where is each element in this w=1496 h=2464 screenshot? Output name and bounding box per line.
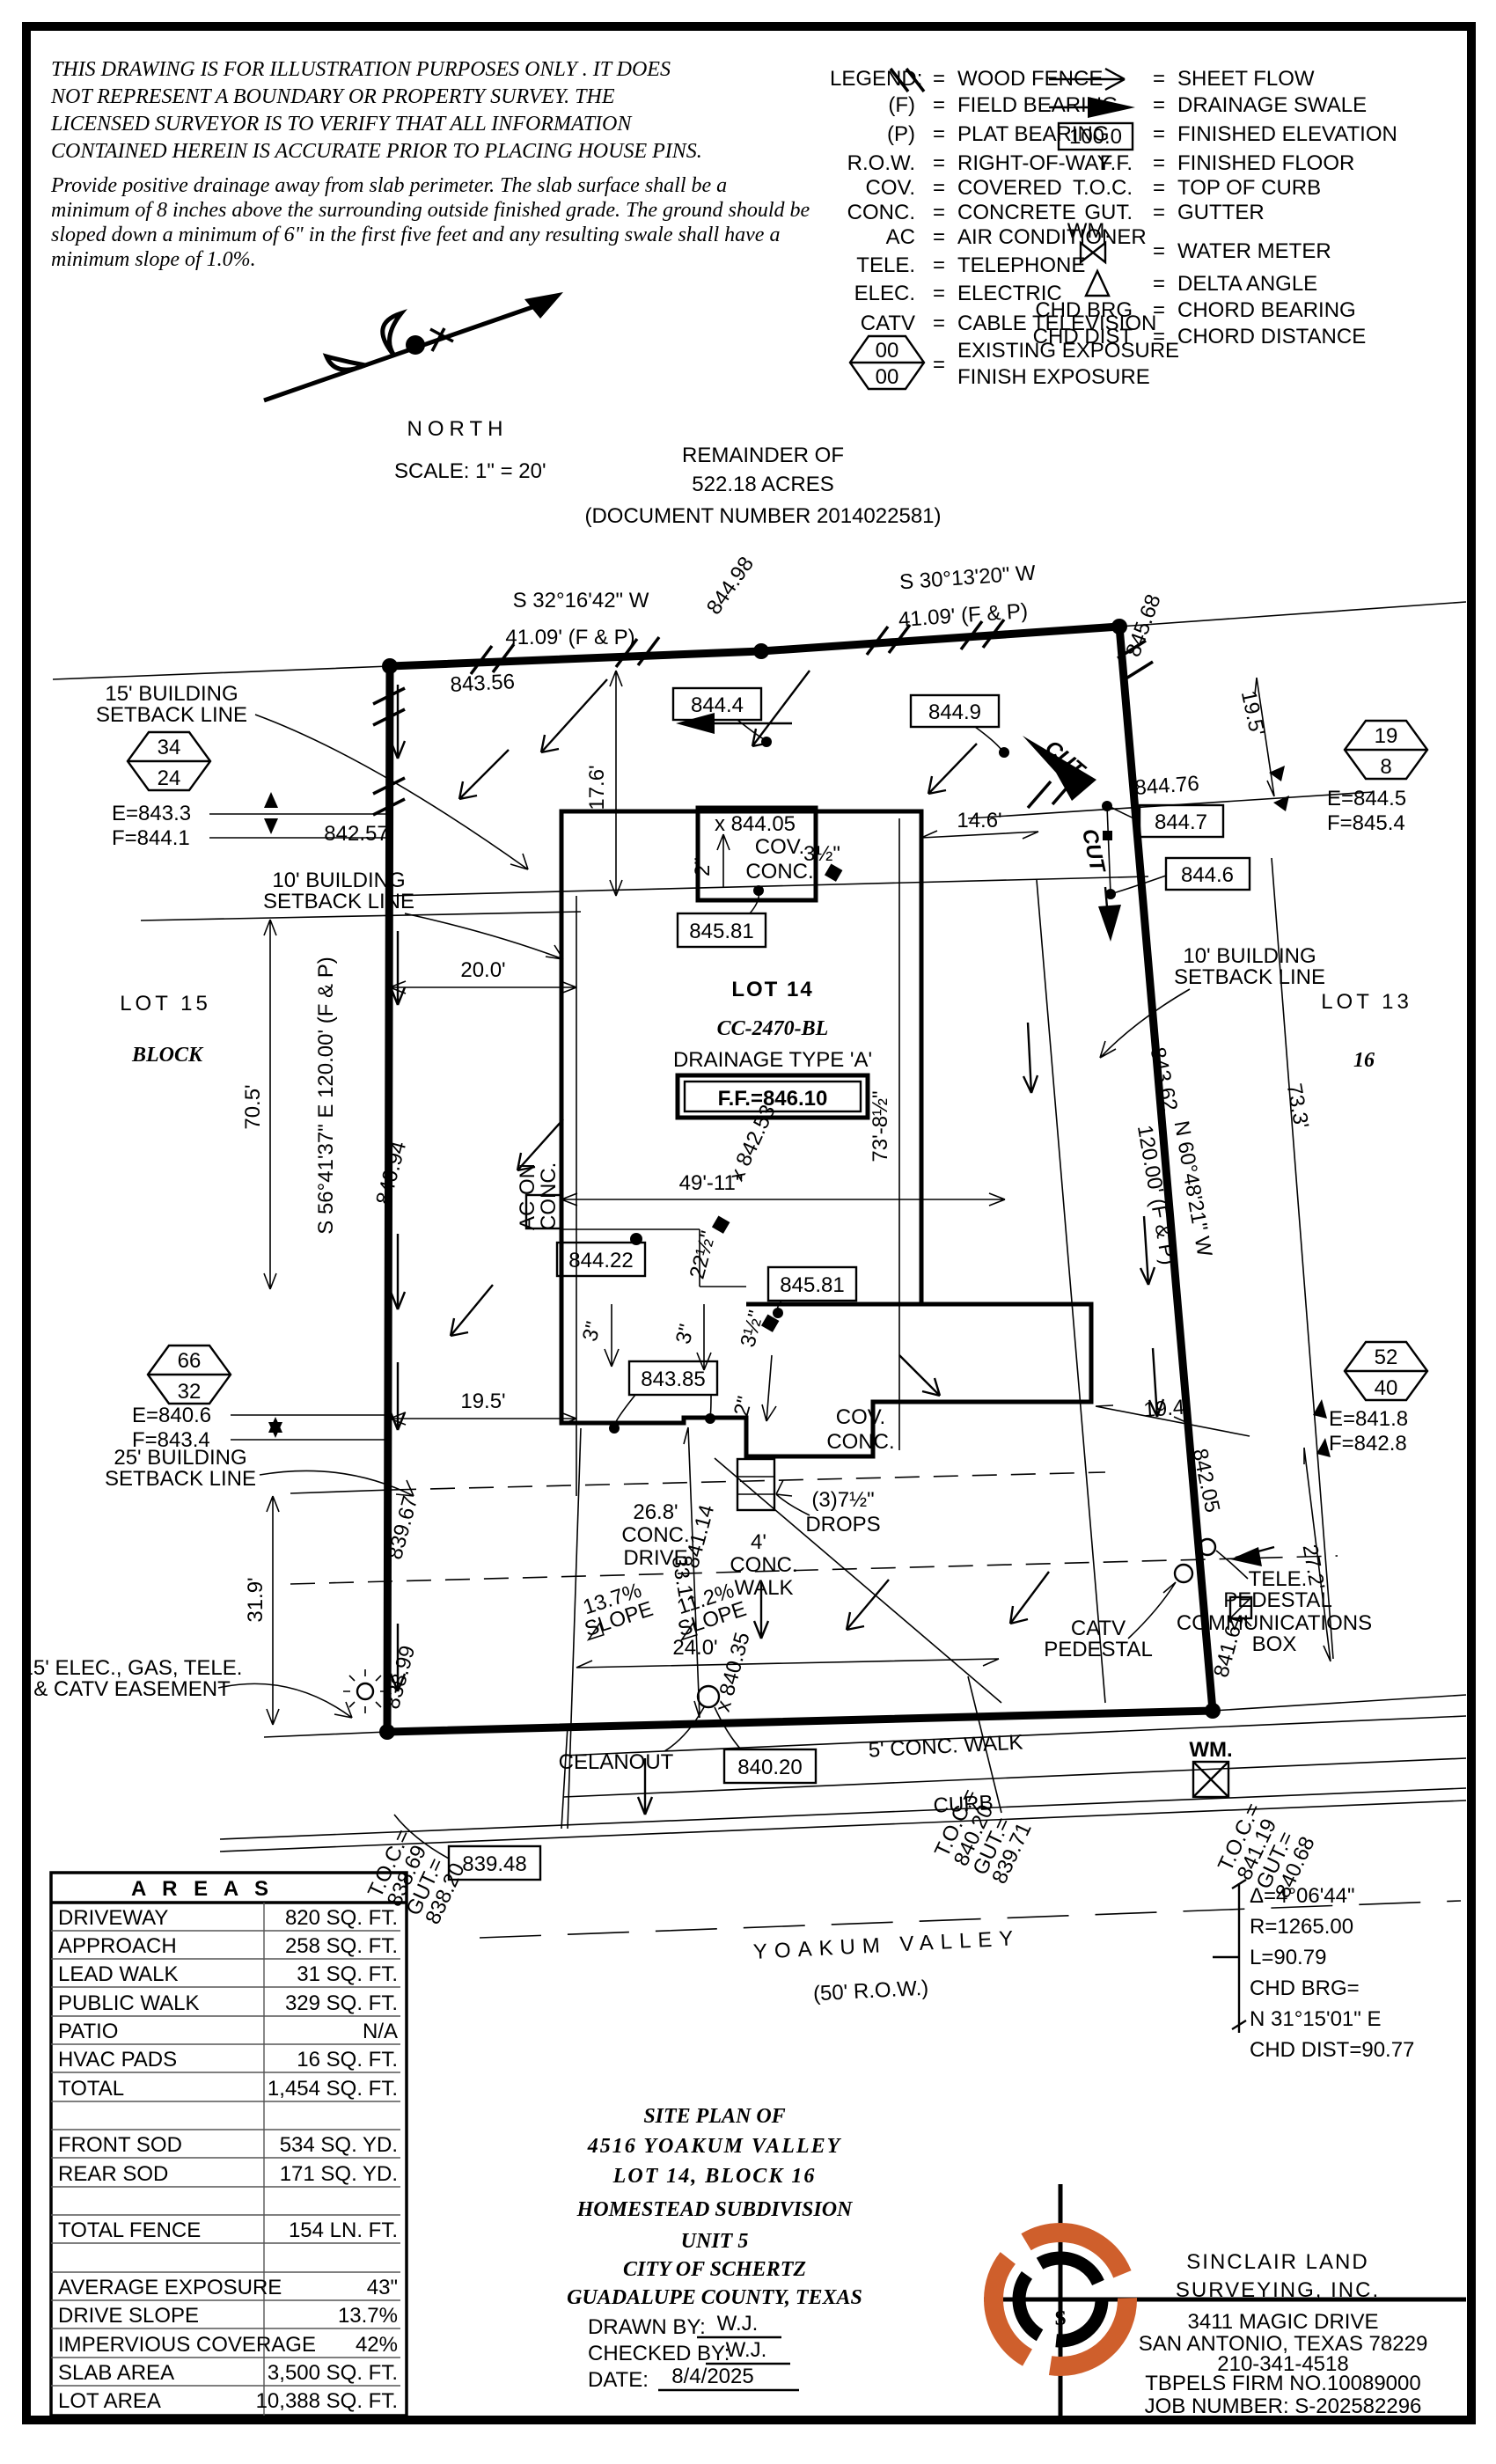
- dim-3in: 3": [671, 1322, 700, 1346]
- table-row-label: DRIVEWAY: [58, 1906, 168, 1930]
- bearing-top-left: S 32°16'42" W: [513, 589, 649, 612]
- checked-by-value: W.J.: [726, 2338, 767, 2362]
- spot-elev-844-4: 844.4: [673, 688, 772, 747]
- svg-text:4': 4': [751, 1530, 766, 1554]
- spot-elev-844-7: 844.7: [1102, 801, 1223, 837]
- legend-sym: ELEC.: [854, 282, 915, 305]
- svg-text:843.85: 843.85: [641, 1368, 705, 1391]
- legend-sym: (P): [887, 122, 915, 146]
- table-row-value: 258 SQ. FT.: [285, 1934, 398, 1958]
- drive-26-8: 26.8': [633, 1500, 678, 1524]
- dim-19-5-left-line: [390, 1412, 576, 1425]
- table-row-label: HVAC PADS: [58, 2048, 177, 2072]
- drainage-note-line: minimum of 8 inches above the surroundin…: [51, 199, 810, 222]
- dim-3in: 3": [578, 1319, 606, 1344]
- drainage-note-line: sloped down a minimum of 6" in the first…: [51, 224, 780, 246]
- table-row-value: 534 SQ. YD.: [280, 2133, 398, 2157]
- elev-843-56: 843.56: [450, 670, 516, 697]
- svg-text:AC ON: AC ON: [516, 1163, 539, 1230]
- elev-840-94: 840.94: [371, 1139, 411, 1207]
- lot14-label: LOT 14: [731, 978, 813, 1001]
- county: GUADALUPE COUNTY, TEXAS: [567, 2286, 862, 2309]
- table-row-value: 43": [367, 2276, 398, 2299]
- legend-sym: (F): [888, 93, 915, 117]
- table-row-label: TOTAL FENCE: [58, 2218, 201, 2242]
- svg-text:10' BUILDING: 10' BUILDING: [272, 869, 405, 892]
- legend-label: TELEPHONE: [957, 253, 1085, 277]
- document-number: (DOCUMENT NUMBER 2014022581): [584, 504, 941, 528]
- setback-line-10ft-right: [1037, 880, 1105, 1703]
- hatch-mark: [825, 863, 842, 881]
- dim-24: 24.0': [672, 1636, 717, 1660]
- disclaimer-line: THIS DRAWING IS FOR ILLUSTRATION PURPOSE…: [51, 58, 671, 81]
- cc-number: CC-2470-BL: [717, 1017, 829, 1040]
- lot15-label: LOT 15: [120, 992, 211, 1016]
- svg-text:844.22: 844.22: [568, 1249, 633, 1272]
- table-row-label: TOTAL: [58, 2077, 124, 2101]
- equals: =: [933, 201, 945, 224]
- disclaimer-line: NOT REPRESENT A BOUNDARY OR PROPERTY SUR…: [50, 85, 615, 108]
- legend-sym: AC: [886, 225, 915, 249]
- equals: =: [933, 122, 945, 146]
- legend-label: CHORD DISTANCE: [1177, 325, 1366, 348]
- svg-text:845.81: 845.81: [780, 1273, 844, 1297]
- site-plan-drawing: THIS DRAWING IS FOR ILLUSTRATION PURPOSE…: [0, 0, 1496, 2464]
- table-row-label: APPROACH: [58, 1934, 177, 1958]
- company-firm: TBPELS FIRM NO.10089000: [1145, 2372, 1420, 2395]
- legend-label: GUTTER: [1177, 201, 1265, 224]
- dim-19-4: 19.4': [1143, 1395, 1190, 1422]
- table-row-label: DRIVE SLOPE: [58, 2304, 199, 2328]
- svg-text:PEDESTAL: PEDESTAL: [1044, 1638, 1153, 1661]
- table-row-label: LOT AREA: [58, 2389, 161, 2413]
- walk-5ft-label: 5' CONC. WALK: [868, 1730, 1023, 1762]
- dim-2in: 2": [730, 1394, 758, 1419]
- finished-floor-box: F.F.=846.10: [678, 1075, 868, 1118]
- arrow-3in-a: [605, 1304, 619, 1367]
- svg-text:E=843.3: E=843.3: [112, 802, 191, 825]
- ac-label: AC ON CONC.: [516, 1162, 561, 1230]
- elev-844-98: 844.98: [702, 553, 759, 620]
- legend-sym: T.O.C.: [1073, 176, 1133, 200]
- logo-s: S: [1054, 2307, 1066, 2330]
- legend-label: FINISH EXPOSURE: [957, 365, 1150, 389]
- equals: =: [933, 353, 945, 377]
- table-row-value: 171 SQ. YD.: [280, 2162, 398, 2186]
- legend: LEGEND: (F) (P) R.O.W. COV. CONC. AC TEL…: [830, 67, 1397, 389]
- table-row-value: 10,388 SQ. FT.: [256, 2389, 398, 2413]
- company-name: SURVEYING, INC.: [1176, 2278, 1380, 2302]
- curve-chd-brg-value: N 31°15'01" E: [1250, 2007, 1381, 2031]
- legend-sym: CHD BRG: [1035, 298, 1133, 322]
- areas-table: A R E A S DRIVEWAY820 SQ. FT. APPROACH25…: [51, 1873, 407, 2416]
- title-block: SITE PLAN OF 4516 YOAKUM VALLEY LOT 14, …: [567, 2105, 862, 2392]
- elev-842-57: 842.57: [324, 822, 388, 846]
- svg-text:SETBACK LINE: SETBACK LINE: [96, 703, 247, 727]
- svg-text:32: 32: [178, 1380, 202, 1404]
- legend-sym: COV.: [866, 176, 915, 200]
- dim-2in: 2": [691, 857, 715, 876]
- legend-label: FINISHED ELEVATION: [1177, 122, 1397, 146]
- legend-label: DELTA ANGLE: [1177, 272, 1317, 296]
- street-name: YOAKUM VALLEY: [752, 1926, 1021, 1964]
- areas-title: A R E A S: [131, 1877, 274, 1901]
- spot-elev-845-81-porch: 845.81: [678, 885, 766, 947]
- lot13-label: LOT 13: [1321, 990, 1412, 1014]
- equals: =: [1153, 298, 1165, 322]
- dim-14-6: 14.6': [957, 809, 1001, 832]
- date-label: DATE:: [588, 2368, 649, 2392]
- dim-73-8: 73'-8½": [869, 1090, 892, 1162]
- water-meter-label: WM.: [1067, 219, 1111, 243]
- svg-text:CONC.: CONC.: [537, 1162, 561, 1230]
- svg-text:52: 52: [1375, 1346, 1398, 1369]
- dim-49-11-line: [561, 1193, 1005, 1206]
- svg-text:840.20: 840.20: [737, 1756, 802, 1779]
- checked-by-label: CHECKED BY:: [588, 2342, 730, 2365]
- svg-text:TELE.: TELE.: [1249, 1567, 1308, 1591]
- equals: =: [933, 312, 945, 335]
- table-row-value: N/A: [363, 2020, 398, 2043]
- legend-label: AIR CONDITIONER: [957, 225, 1147, 249]
- bearing-top-right-dist: 41.09' (F & P): [898, 599, 1029, 632]
- dim-19-5-right: 19.5': [1236, 689, 1269, 738]
- svg-text:(3)7½": (3)7½": [811, 1488, 874, 1512]
- equals: =: [933, 176, 945, 200]
- svg-text:CONC.: CONC.: [730, 1553, 797, 1577]
- legend-sym: CONC.: [847, 201, 915, 224]
- curve-radius: R=1265.00: [1250, 1915, 1353, 1939]
- table-row-value: 3,500 SQ. FT.: [268, 2361, 398, 2385]
- north-label: NORTH: [407, 417, 509, 441]
- legend-label: RIGHT-OF-WAY: [957, 151, 1111, 175]
- equals: =: [933, 151, 945, 175]
- patio-cov: COV.: [836, 1405, 885, 1429]
- elev-844-76: 844.76: [1134, 772, 1200, 800]
- city: CITY OF SCHERTZ: [623, 2258, 806, 2281]
- equals: =: [1153, 272, 1165, 296]
- svg-text:66: 66: [178, 1349, 202, 1373]
- equals: =: [1153, 93, 1165, 117]
- legend-sym: R.O.W.: [847, 151, 915, 175]
- svg-text:15' BUILDING: 15' BUILDING: [105, 682, 238, 706]
- north-arrow: [264, 292, 563, 400]
- bearing-top-right: S 30°13'20" W: [898, 561, 1037, 595]
- company-name: SINCLAIR LAND: [1186, 2250, 1368, 2274]
- steps: [737, 1459, 774, 1510]
- legend-sym: TELE.: [856, 253, 915, 277]
- equals: =: [1153, 151, 1165, 175]
- svg-text:CATV: CATV: [1071, 1617, 1126, 1640]
- porch-arrow: [717, 834, 730, 887]
- patio-conc: CONC.: [826, 1430, 894, 1454]
- company-block: S SINCLAIR LAND SURVEYING, INC. 3411 MAG…: [984, 2184, 1466, 2418]
- svg-text:E=841.8: E=841.8: [1329, 1407, 1408, 1431]
- equals: =: [1153, 325, 1165, 348]
- dim-3half-in: 3½": [736, 1308, 768, 1349]
- svg-text:WM.: WM.: [1189, 1738, 1232, 1762]
- exposure-bottom: 00: [876, 365, 899, 389]
- svg-text:F=845.4: F=845.4: [1327, 811, 1405, 835]
- svg-text:844.9: 844.9: [928, 700, 981, 724]
- dim-73-3: 73.3': [1282, 1082, 1313, 1130]
- svg-text:844.4: 844.4: [691, 693, 744, 717]
- drawn-by-value: W.J.: [717, 2312, 759, 2336]
- svg-text:844.7: 844.7: [1155, 810, 1207, 834]
- spot-elev-845-81-patio: 845.81: [768, 1267, 856, 1318]
- title-line: LOT 14, BLOCK 16: [612, 2165, 817, 2188]
- svg-text:PEDESTAL: PEDESTAL: [1223, 1588, 1332, 1612]
- bearing-left: S 56°41'37" E 120.00' (F & P): [314, 957, 338, 1234]
- cleanout: CELANOUT 840.20: [559, 1686, 816, 1783]
- job-number: JOB NUMBER: S-202582296: [1145, 2394, 1422, 2418]
- legend-label: COVERED: [957, 176, 1062, 200]
- exposure-top: 00: [876, 339, 899, 363]
- north-arrow-head-icon: [524, 292, 563, 319]
- table-row-value: 1,454 SQ. FT.: [268, 2077, 398, 2101]
- hatch-mark: [712, 1215, 730, 1233]
- svg-text:10' BUILDING: 10' BUILDING: [1183, 944, 1316, 968]
- lead-walk-label: 4' CONC. WALK: [730, 1530, 797, 1600]
- easement-label: 15' ELEC., GAS, TELE. & CATV EASEMENT: [22, 1656, 352, 1718]
- delta-angle-icon: [1086, 271, 1109, 296]
- setback-label-10ft-right: 10' BUILDING SETBACK LINE: [1100, 944, 1325, 1058]
- svg-text:SETBACK LINE: SETBACK LINE: [105, 1467, 256, 1491]
- svg-text:40: 40: [1375, 1376, 1398, 1400]
- table-row-value: 42%: [356, 2333, 398, 2357]
- svg-text:SETBACK LINE: SETBACK LINE: [1174, 965, 1325, 989]
- setback-label-10ft-left: 10' BUILDING SETBACK LINE: [263, 869, 563, 959]
- patio-arrow: [762, 1355, 776, 1421]
- subdivision-name: HOMESTEAD SUBDIVISION: [576, 2198, 854, 2221]
- svg-text:844.6: 844.6: [1181, 863, 1234, 887]
- svg-text:E=844.5: E=844.5: [1327, 787, 1406, 810]
- dim-31-9-line: [267, 1496, 279, 1725]
- benchmark-66-32: 66 32 E=840.6 F=843.4: [132, 1346, 390, 1452]
- drainage-note-line: minimum slope of 1.0%.: [51, 248, 256, 271]
- svg-text:F=844.1: F=844.1: [112, 826, 190, 850]
- legend-label: SHEET FLOW: [1177, 67, 1315, 91]
- equals: =: [933, 282, 945, 305]
- table-row-label: REAR SOD: [58, 2162, 168, 2186]
- svg-text:839.48: 839.48: [462, 1852, 526, 1876]
- equals: =: [933, 225, 945, 249]
- curve-chd-brg: CHD BRG=: [1250, 1976, 1360, 2000]
- dim-20-line: [390, 981, 576, 994]
- dim-17-6-line: [610, 671, 622, 896]
- svg-text:E=840.6: E=840.6: [132, 1404, 211, 1427]
- svg-text:34: 34: [158, 736, 181, 759]
- spot-elev-844-9: 844.9: [911, 695, 1009, 758]
- legend-label: CHORD BEARING: [1177, 298, 1356, 322]
- water-meter: WM.: [1189, 1738, 1232, 1797]
- wood-fence-ticks: [373, 641, 1153, 815]
- svg-text:& CATV EASEMENT: & CATV EASEMENT: [33, 1677, 231, 1701]
- disclaimer-note: THIS DRAWING IS FOR ILLUSTRATION PURPOSE…: [50, 58, 810, 271]
- table-row-value: 31 SQ. FT.: [297, 1962, 398, 1986]
- equals: =: [933, 93, 945, 117]
- porch-cov: COV.: [755, 835, 804, 859]
- table-row-label: IMPERVIOUS COVERAGE: [58, 2333, 316, 2357]
- svg-text:BOX: BOX: [1252, 1632, 1297, 1656]
- bearing-top-left-dist: 41.09' (F & P): [505, 626, 634, 649]
- easement-line: [290, 1556, 1338, 1584]
- svg-text:19: 19: [1375, 724, 1398, 748]
- legend-label: FINISHED FLOOR: [1177, 151, 1354, 175]
- svg-text:COMMUNICATIONS: COMMUNICATIONS: [1177, 1611, 1372, 1635]
- setback-label-25ft: 25' BUILDING SETBACK LINE: [105, 1446, 414, 1496]
- disclaimer-line: CONTAINED HEREIN IS ACCURATE PRIOR TO PL…: [51, 140, 702, 163]
- svg-text:24: 24: [158, 766, 181, 790]
- equals: =: [1153, 201, 1165, 224]
- table-row-label: FRONT SOD: [58, 2133, 182, 2157]
- dim-24-line: [576, 1659, 999, 1668]
- table-row-value: 154 LN. FT.: [289, 2218, 398, 2242]
- curve-length: L=90.79: [1250, 1946, 1326, 1969]
- dim-19-5-left: 19.5': [460, 1390, 505, 1413]
- drive-conc: CONC.: [621, 1523, 689, 1547]
- dim-20: 20.0': [460, 958, 505, 982]
- remainder-line: REMAINDER OF: [682, 444, 844, 467]
- block-label: BLOCK: [131, 1044, 204, 1067]
- arrow-3in-b: [697, 1304, 711, 1370]
- table-row-value: 329 SQ. FT.: [285, 1991, 398, 2015]
- equals: =: [1153, 67, 1165, 91]
- legend-sym: CHD DIST: [1033, 325, 1133, 348]
- legend-label: DRAINAGE SWALE: [1177, 93, 1367, 117]
- spot-elev-844-22: 844.22: [557, 1233, 645, 1276]
- house-footprint: [526, 808, 1091, 1510]
- svg-text:SETBACK LINE: SETBACK LINE: [263, 890, 414, 913]
- curve-chd-dist: CHD DIST=90.77: [1250, 2038, 1414, 2062]
- table-row-value: 13.7%: [338, 2304, 398, 2328]
- svg-text:F=842.8: F=842.8: [1329, 1432, 1407, 1456]
- catv-pedestal-icon: [1175, 1565, 1192, 1582]
- dim-31-9: 31.9': [244, 1577, 268, 1622]
- title-line: 4516 YOAKUM VALLEY: [587, 2135, 842, 2158]
- legend-sym: CATV: [861, 312, 915, 335]
- remainder-note: REMAINDER OF 522.18 ACRES (DOCUMENT NUMB…: [584, 444, 941, 528]
- table-row-label: PUBLIC WALK: [58, 1991, 200, 2015]
- legend-label: CONCRETE: [957, 201, 1076, 224]
- equals: =: [933, 67, 945, 91]
- equals: =: [1153, 239, 1165, 263]
- drops-label: (3)7½" DROPS: [776, 1480, 881, 1536]
- block16-label: 16: [1353, 1049, 1375, 1072]
- drawn-by-label: DRAWN BY:: [588, 2315, 706, 2339]
- svg-text:8: 8: [1380, 755, 1391, 779]
- equals: =: [1153, 122, 1165, 146]
- equals: =: [933, 253, 945, 277]
- benchmark-52-40: 52 40 E=841.8 F=842.8: [1313, 1342, 1427, 1457]
- catv-pedestal-label: CATV PEDESTAL: [1044, 1582, 1176, 1661]
- dim-22half: 22½": [686, 1228, 721, 1281]
- elev-x-842-53: x 842.53: [725, 1101, 781, 1184]
- curve-data: Δ=4°06'44" R=1265.00 L=90.79 CHD BRG= N …: [1213, 1880, 1414, 2062]
- street-row: (50' R.O.W.): [812, 1976, 928, 2006]
- title-line: SITE PLAN OF: [643, 2105, 785, 2128]
- disclaimer-line: LICENSED SURVEYOR IS TO VERIFY THAT ALL …: [50, 113, 633, 136]
- legend-label: WATER METER: [1177, 239, 1331, 263]
- table-row-value: 16 SQ. FT.: [297, 2048, 398, 2072]
- drainage-type: DRAINAGE TYPE 'A': [673, 1048, 872, 1072]
- site-plan-sheet: THIS DRAWING IS FOR ILLUSTRATION PURPOSE…: [0, 0, 1496, 2464]
- slope-label-1: 13.7% SLOPE: [576, 1577, 656, 1641]
- dim-70-5-line: [264, 920, 276, 1289]
- lamp-symbol: [343, 1669, 387, 1713]
- drainage-note-line: Provide positive drainage away from slab…: [50, 174, 727, 197]
- dim-70-5: 70.5': [241, 1084, 265, 1129]
- legend-sym: 100.0: [1069, 125, 1122, 149]
- table-row-value: 820 SQ. FT.: [285, 1906, 398, 1930]
- dim-3half-in: 3½": [803, 842, 840, 866]
- table-row-label: AVERAGE EXPOSURE: [58, 2276, 282, 2299]
- svg-text:15' ELEC., GAS, TELE.: 15' ELEC., GAS, TELE.: [22, 1656, 243, 1680]
- curve-delta: Δ=4°06'44": [1250, 1884, 1354, 1908]
- benchmark-19-8: 19 8 E=844.5 F=845.4: [1269, 721, 1427, 835]
- table-row-label: SLAB AREA: [58, 2361, 174, 2385]
- dim-17-6: 17.6': [585, 765, 609, 810]
- equals: =: [1153, 176, 1165, 200]
- setback-line-25ft-ext: [290, 1490, 392, 1493]
- elev-843-62: 843.62: [1146, 1045, 1183, 1113]
- scale-label: SCALE: 1" = 20': [394, 459, 546, 483]
- unit: UNIT 5: [681, 2230, 749, 2253]
- svg-text:25' BUILDING: 25' BUILDING: [114, 1446, 246, 1470]
- company-address: 3411 MAGIC DRIVE: [1188, 2310, 1379, 2334]
- svg-text:DROPS: DROPS: [805, 1513, 880, 1536]
- table-row-label: LEAD WALK: [58, 1962, 179, 1986]
- legend-sym: F.F.: [1100, 151, 1133, 175]
- svg-text:F.F.=846.10: F.F.=846.10: [718, 1087, 828, 1111]
- table-row-label: PATIO: [58, 2020, 118, 2043]
- svg-text:845.81: 845.81: [689, 920, 753, 943]
- legend-label: TOP OF CURB: [1177, 176, 1321, 200]
- cut-arrow-2-head: [1098, 905, 1121, 942]
- date-value: 8/4/2025: [671, 2365, 753, 2388]
- remainder-line: 522.18 ACRES: [692, 473, 833, 496]
- elev-x-844-05: x 844.05: [715, 812, 796, 836]
- svg-text:WALK: WALK: [734, 1576, 793, 1600]
